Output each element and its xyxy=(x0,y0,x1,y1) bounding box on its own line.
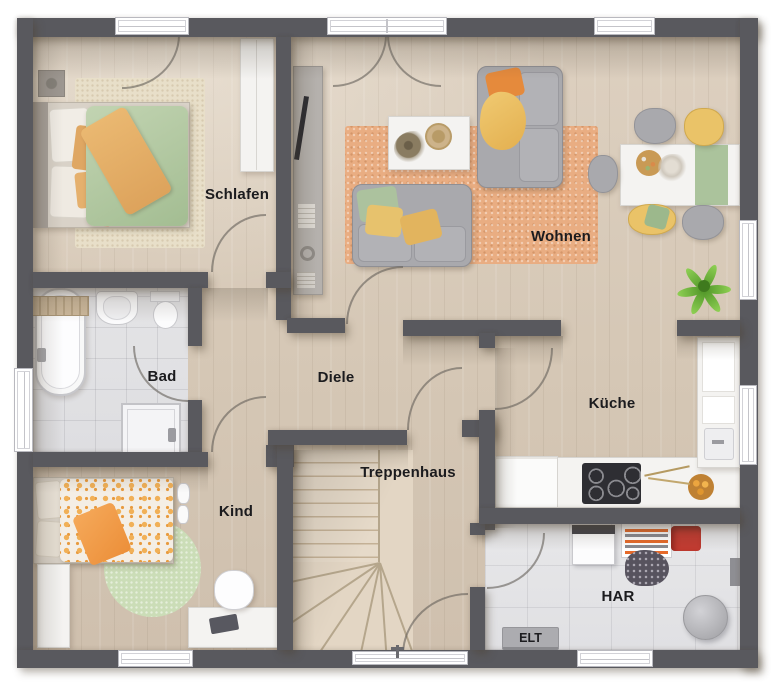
bed-headboard xyxy=(33,102,48,228)
red-basket xyxy=(671,526,701,551)
window-schlafen xyxy=(115,17,189,35)
kid-pillow xyxy=(35,520,63,558)
water-tank xyxy=(683,595,728,640)
fruit-bowl xyxy=(688,474,714,500)
wall-schlafen-south xyxy=(33,272,208,288)
wall-kueche-har xyxy=(479,508,740,524)
sofa-2-cushion xyxy=(519,128,559,182)
wall-outer-right xyxy=(740,18,758,668)
fridge xyxy=(495,456,558,508)
slipper xyxy=(177,505,189,524)
bath-tray xyxy=(32,296,89,316)
washing-machine-panel xyxy=(572,525,615,534)
kitchen-faucet xyxy=(712,440,724,444)
bath-faucet xyxy=(37,348,46,362)
wall-bad-east-top xyxy=(188,288,202,346)
dining-chair-gray xyxy=(588,155,618,193)
window-wohnen-top xyxy=(594,17,655,35)
wall-kueche-west-stub xyxy=(479,333,495,348)
room-label-kind: Kind xyxy=(219,504,253,521)
shower-head xyxy=(168,428,176,442)
dining-chair-gray xyxy=(634,108,676,144)
sideboard-decor-ring xyxy=(300,246,315,261)
window-har xyxy=(577,650,653,667)
washbasin-bowl xyxy=(103,296,131,320)
wall-har-west-bottom xyxy=(470,587,485,650)
room-label-bad: Bad xyxy=(148,369,177,386)
wardrobe xyxy=(240,38,274,172)
room-label-wohnen: Wohnen xyxy=(531,229,591,246)
counter-shelf xyxy=(702,342,735,392)
wall-har-west-top xyxy=(470,523,485,535)
window-kueche xyxy=(739,385,757,465)
wall-wohnen-south-right xyxy=(677,320,740,336)
room-label-kueche: Küche xyxy=(589,396,636,413)
wall-outer-left xyxy=(17,18,33,651)
entrance-door-handle-bar xyxy=(391,647,404,650)
wall-treppenhaus-north xyxy=(268,430,407,445)
slipper xyxy=(177,483,190,504)
floorplan-canvas: ELT xyxy=(0,0,775,688)
entrance-door-leaf xyxy=(352,651,468,665)
cooktop xyxy=(582,463,641,504)
dining-chair-gray xyxy=(682,205,724,240)
wall-lamp xyxy=(38,70,65,97)
wall-schlafen-south-stub xyxy=(266,272,291,288)
elt-label: ELT xyxy=(519,631,542,645)
room-label-schlafen: Schlafen xyxy=(205,187,269,204)
table-runner xyxy=(695,145,728,205)
wall-kind-treppenhaus xyxy=(277,445,293,650)
dining-chair-yellow xyxy=(684,108,724,146)
desk-chair xyxy=(214,570,254,610)
room-label-treppenhaus: Treppenhaus xyxy=(360,465,456,482)
toilet-bowl xyxy=(153,301,178,329)
kitchen-sink xyxy=(704,428,734,460)
window-bad xyxy=(14,368,33,452)
sideboard-books xyxy=(297,272,315,288)
laundry-pile xyxy=(625,550,669,586)
window-kind xyxy=(118,650,193,667)
room-label-diele: Diele xyxy=(318,370,355,387)
wall-bad-east-bottom xyxy=(188,400,202,452)
room-label-har: HAR xyxy=(601,589,634,606)
counter-shelf xyxy=(702,396,735,424)
window-wohnen-right xyxy=(739,220,757,300)
sofa-pillow-yellow xyxy=(365,204,404,238)
dried-plant xyxy=(394,131,430,163)
kid-wardrobe xyxy=(37,564,70,648)
wall-diele-north xyxy=(287,318,345,333)
wall-cabinet xyxy=(730,558,740,586)
wall-kind-north xyxy=(33,452,208,467)
elt-box: ELT xyxy=(502,627,559,650)
french-window-divider xyxy=(386,19,388,33)
potted-plant xyxy=(674,260,734,318)
sideboard-books xyxy=(298,204,315,228)
wardrobe-door-seam xyxy=(256,40,257,170)
